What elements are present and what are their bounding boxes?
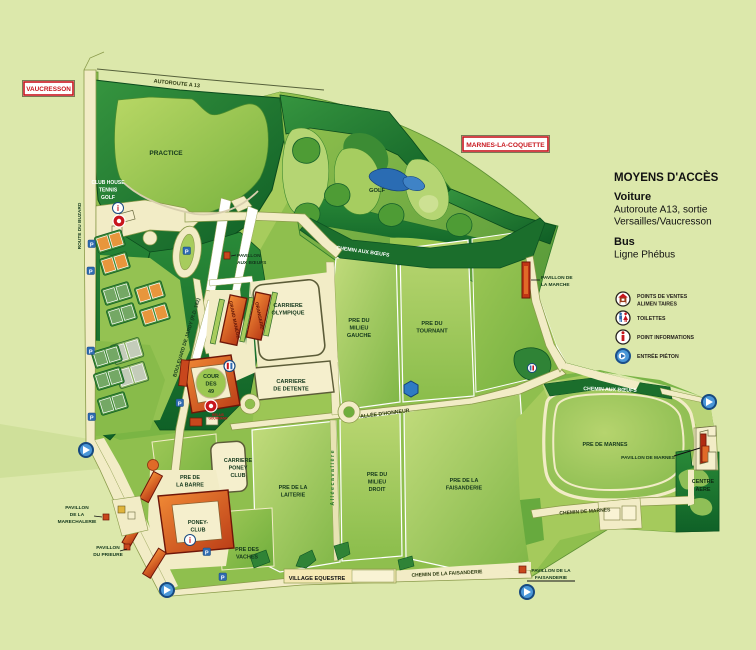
- svg-text:FAISANDERIE: FAISANDERIE: [446, 486, 483, 492]
- svg-text:PONEY: PONEY: [229, 466, 248, 472]
- svg-text:i: i: [117, 204, 119, 213]
- svg-text:DROIT: DROIT: [369, 487, 386, 493]
- svg-text:PRE DES: PRE DES: [235, 547, 259, 553]
- svg-text:Bus: Bus: [614, 236, 635, 248]
- svg-text:POINTS DE VENTES: POINTS DE VENTES: [637, 294, 688, 300]
- svg-text:DU PRIEURE: DU PRIEURE: [93, 552, 123, 558]
- svg-text:VILLAGE EQUESTRE: VILLAGE EQUESTRE: [289, 576, 346, 582]
- svg-text:CENTRE: CENTRE: [692, 479, 715, 485]
- svg-text:MARECHALERIE: MARECHALERIE: [58, 519, 97, 525]
- svg-text:GAUCHE: GAUCHE: [347, 333, 372, 339]
- svg-text:PRE DE LA: PRE DE LA: [450, 478, 479, 484]
- svg-text:i: i: [189, 536, 191, 545]
- svg-text:VAUCRESSON: VAUCRESSON: [26, 86, 71, 93]
- svg-text:P: P: [185, 249, 189, 255]
- svg-text:LA BARRE: LA BARRE: [176, 483, 204, 489]
- svg-text:A l l é e c a v a l i è r e: A l l é e c a v a l i è r e: [330, 450, 336, 505]
- svg-text:AUX BŒUFS: AUX BŒUFS: [237, 260, 267, 266]
- svg-text:PAVILLON: PAVILLON: [65, 505, 89, 511]
- svg-text:CLUB HOUSE: CLUB HOUSE: [91, 180, 125, 186]
- svg-text:GOLF: GOLF: [369, 188, 386, 194]
- svg-text:FAISANDERIE: FAISANDERIE: [535, 575, 568, 581]
- svg-text:MOYENS D'ACCÈS: MOYENS D'ACCÈS: [614, 171, 719, 184]
- svg-text:DES: DES: [205, 382, 216, 388]
- svg-text:AERE: AERE: [696, 487, 711, 493]
- svg-text:DE DETENTE: DE DETENTE: [273, 387, 309, 393]
- svg-text:DE LA: DE LA: [70, 512, 85, 518]
- svg-text:P: P: [178, 401, 182, 407]
- svg-text:POINT INFORMATIONS: POINT INFORMATIONS: [637, 335, 695, 341]
- svg-text:Autoroute A13, sortie: Autoroute A13, sortie: [614, 205, 708, 216]
- svg-text:MILIEU: MILIEU: [368, 480, 386, 486]
- svg-text:CARRIERE: CARRIERE: [276, 379, 305, 385]
- svg-text:PRE DE MARNES: PRE DE MARNES: [583, 442, 628, 448]
- svg-text:P: P: [205, 550, 209, 556]
- svg-text:P: P: [89, 349, 93, 355]
- svg-text:ROUTE DU BUZARD: ROUTE DU BUZARD: [77, 202, 83, 249]
- svg-text:Ligne Phébus: Ligne Phébus: [614, 250, 675, 261]
- svg-text:GOLF: GOLF: [101, 195, 115, 201]
- svg-text:PRE DE LA: PRE DE LA: [279, 485, 308, 491]
- svg-text:PAVILLON: PAVILLON: [96, 545, 120, 551]
- svg-text:PRE DU: PRE DU: [421, 321, 442, 327]
- svg-text:MARNES-LA-COQUETTE: MARNES-LA-COQUETTE: [466, 142, 545, 149]
- svg-text:Versailles/Vaucresson: Versailles/Vaucresson: [614, 217, 712, 228]
- svg-text:P: P: [221, 575, 225, 581]
- svg-text:VACHES: VACHES: [236, 555, 258, 561]
- svg-text:P: P: [89, 269, 93, 275]
- svg-text:CARRIERE: CARRIERE: [273, 303, 302, 309]
- svg-text:COUR: COUR: [203, 374, 219, 380]
- svg-text:MILIEU: MILIEU: [350, 326, 369, 332]
- svg-text:P: P: [90, 242, 94, 248]
- svg-text:PAVILLON DE LA: PAVILLON DE LA: [531, 568, 571, 574]
- svg-text:PRE DU: PRE DU: [367, 472, 387, 478]
- svg-text:CARRIERE: CARRIERE: [224, 458, 253, 464]
- svg-text:PRE DU: PRE DU: [348, 318, 369, 324]
- svg-text:TOURNANT: TOURNANT: [416, 329, 448, 335]
- svg-text:TENNIS: TENNIS: [99, 188, 118, 194]
- svg-text:TOILETTES: TOILETTES: [637, 316, 666, 322]
- svg-text:PRACTICE: PRACTICE: [149, 150, 183, 157]
- svg-text:CLUB: CLUB: [231, 473, 246, 479]
- svg-text:LAITERIE: LAITERIE: [281, 493, 306, 499]
- svg-text:49: 49: [208, 389, 214, 395]
- svg-text:PAVILLON DE MARNES: PAVILLON DE MARNES: [621, 455, 675, 461]
- svg-text:PONEY-: PONEY-: [188, 520, 209, 526]
- svg-text:CLUB: CLUB: [191, 528, 206, 534]
- svg-text:ALIMEN TAIRES: ALIMEN TAIRES: [637, 302, 678, 308]
- svg-text:PAVILLON: PAVILLON: [237, 253, 261, 259]
- svg-text:GOURMAND: GOURMAND: [208, 417, 228, 421]
- svg-text:ENTRÉE PIÉTON: ENTRÉE PIÉTON: [637, 352, 679, 360]
- svg-text:LA MARCHE: LA MARCHE: [541, 282, 570, 288]
- svg-text:OLYMPIQUE: OLYMPIQUE: [271, 311, 304, 317]
- svg-text:P: P: [90, 415, 94, 421]
- svg-text:PRE DE: PRE DE: [180, 475, 200, 481]
- svg-text:Voiture: Voiture: [614, 191, 651, 203]
- svg-text:PAVILLON DE: PAVILLON DE: [541, 275, 573, 281]
